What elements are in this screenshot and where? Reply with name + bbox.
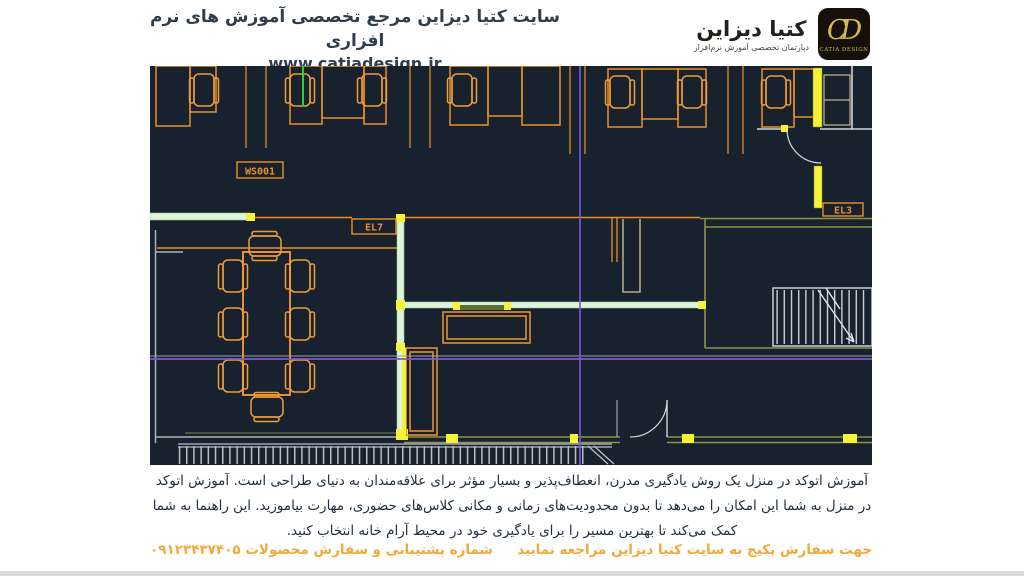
site-title: سایت کتیا دیزاین مرجع تخصصی آموزش های نر… — [150, 5, 560, 53]
bottom-strip — [0, 571, 1024, 576]
brand-name: کتیا دیزاین — [694, 17, 809, 41]
window-segment — [457, 305, 508, 310]
door-jamb-yellow — [813, 68, 822, 127]
el3-label: EL3 — [834, 206, 852, 217]
railing-hatch — [178, 444, 614, 464]
cta-row: جهت سفارش پکیج به سایت کتیا دیزاین مراجع… — [150, 542, 872, 558]
promo-banner: سایت کتیا دیزاین مرجع تخصصی آموزش های نر… — [0, 0, 1024, 576]
door-jamb-yellow — [814, 166, 822, 208]
promo-paragraph-line: کمک می‌کند تا بهترین مسیر را برای یادگیر… — [140, 519, 884, 544]
support-phone-text: شماره پشتیبانی و سفارش محصولات ۰۹۱۲۳۴۳۷۴… — [150, 542, 493, 558]
wall-light-green — [404, 302, 705, 308]
wall-light-green — [150, 213, 250, 220]
catia-design-logo: CD CATIA DESIGN — [818, 8, 870, 60]
brand-block: کتیا دیزاین دپارتمان تخصصی آموزش نرم‌افز… — [694, 8, 870, 60]
staircase — [773, 288, 872, 346]
order-cta-text: جهت سفارش پکیج به سایت کتیا دیزاین مراجع… — [517, 542, 872, 558]
brand-text: کتیا دیزاین دپارتمان تخصصی آموزش نرم‌افز… — [694, 17, 809, 52]
cad-screenshot: WS001 EL7 EL3 — [150, 66, 872, 465]
brand-subtitle: دپارتمان تخصصی آموزش نرم‌افزار — [694, 43, 809, 52]
el7-label: EL7 — [365, 223, 383, 234]
promo-paragraph-line: در منزل به شما این امکان را می‌دهد تا بد… — [140, 494, 884, 519]
promo-paragraph-line: آموزش اتوکد در منزل یک روش یادگیری مدرن،… — [140, 469, 884, 494]
cad-canvas: WS001 EL7 EL3 — [150, 66, 872, 465]
header-title-block: سایت کتیا دیزاین مرجع تخصصی آموزش های نر… — [150, 5, 560, 75]
ws001-label: WS001 — [245, 167, 275, 178]
logo-monogram: CD — [827, 16, 855, 46]
promo-paragraph: آموزش اتوکد در منزل یک روش یادگیری مدرن،… — [140, 469, 884, 544]
logo-caption: CATIA DESIGN — [819, 47, 868, 53]
cad-background — [150, 66, 872, 465]
